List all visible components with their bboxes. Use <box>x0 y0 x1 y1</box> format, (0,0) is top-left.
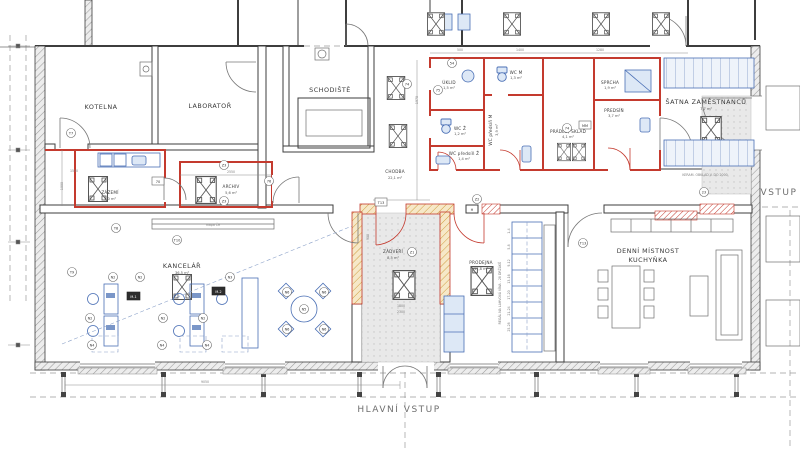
svg-text:Z3: Z3 <box>222 164 227 168</box>
equipment-symbol <box>427 13 444 36</box>
room-area-uklid: 1,5 m² <box>443 86 455 90</box>
dim-1280: 1280 <box>596 48 604 52</box>
svg-text:74: 74 <box>565 127 570 131</box>
room-label-kotelna: KOTELNA <box>84 103 117 111</box>
dim-1970: 1970 <box>415 96 419 104</box>
equipment-symbol <box>503 13 520 36</box>
room-area-zazemi: 5,0 m² <box>104 197 116 201</box>
equipment-symbol <box>393 271 415 300</box>
svg-text:N2: N2 <box>88 317 93 321</box>
datum-markers <box>8 44 30 347</box>
svg-text:21-24: 21-24 <box>507 306 511 315</box>
side-entrance-label: VSTUP <box>761 188 798 198</box>
dim-2300: 2300 <box>397 310 405 314</box>
dim-9050: 9050 <box>201 380 209 384</box>
room-area-archiv: 5,6 m² <box>225 191 237 195</box>
svg-text:T9: T9 <box>69 271 74 275</box>
svg-text:M-2: M-2 <box>215 290 221 294</box>
svg-text:N5: N5 <box>302 308 307 312</box>
svg-text:T7: T7 <box>68 132 73 136</box>
svg-text:N4: N4 <box>205 344 211 348</box>
room-label-satna: ŠATNA ZAMĚSTNANCŮ <box>666 97 747 106</box>
svg-text:74: 74 <box>405 83 410 87</box>
svg-text:REGÁL NA LAHVOVÁ VÍNA - 28 DRŽ: REGÁL NA LAHVOVÁ VÍNA - 28 DRŽÁKŮ <box>497 261 502 324</box>
svg-text:N4: N4 <box>160 344 166 348</box>
svg-text:5-8: 5-8 <box>507 244 511 249</box>
tiling-note: KERAM. OBKLAD V. DO 2000 <box>682 173 727 177</box>
svg-text:25-28: 25-28 <box>507 322 511 331</box>
wardrobes-dashed <box>92 336 248 352</box>
boiler-symbol <box>140 62 152 76</box>
svg-text:23: 23 <box>702 191 706 195</box>
svg-text:Z1: Z1 <box>410 251 415 255</box>
equipment-symbol <box>173 275 192 300</box>
room-label-wc-m: WC M <box>510 70 523 75</box>
zazemi-counter <box>98 153 160 167</box>
svg-text:N6: N6 <box>322 328 327 332</box>
room-area-sprcha: 1,9 m² <box>604 86 616 90</box>
svg-text:T8: T8 <box>113 227 118 231</box>
svg-text:N3: N3 <box>228 276 233 280</box>
room-label-chodba: CHODBA <box>385 169 405 174</box>
room-area-zadveri: 8,5 m² <box>387 256 399 260</box>
dayroom-furniture <box>598 219 742 340</box>
dim-1000: 1000 <box>60 182 64 190</box>
equipment-symbol <box>196 177 216 204</box>
dim-2550: 2550 <box>227 170 235 174</box>
equipment-symbol <box>592 13 609 36</box>
dim-900: 900 <box>366 234 370 240</box>
main-entrance-label: HLAVNÍ VSTUP <box>357 403 440 415</box>
equipment-symbol <box>652 13 669 36</box>
room-area-wc-predsin-z: 1,4 m² <box>458 157 470 161</box>
svg-text:13-16: 13-16 <box>507 274 511 283</box>
svg-text:75: 75 <box>436 89 440 93</box>
wine-shelf-note: REGÁL NA LAHVOVÁ VÍNA - 28 DRŽÁKŮ <box>497 261 502 324</box>
svg-text:WC předsíň M: WC předsíň M <box>488 114 493 145</box>
room-label-denni: DENNÍ MÍSTNOST <box>617 246 680 255</box>
svg-text:T13: T13 <box>579 242 587 246</box>
room-area-chodba: 22,1 m² <box>388 176 403 180</box>
room-area-pradlo: 4,1 m² <box>562 135 574 139</box>
room-label-archiv: ARCHIV <box>223 184 240 189</box>
room-area-kancelar: 36,5 m² <box>175 271 190 275</box>
room-label-laborator: LABORATOŘ <box>188 101 231 110</box>
washer-symbols <box>557 143 585 161</box>
svg-text:N2: N2 <box>138 276 143 280</box>
svg-text:Z3: Z3 <box>222 200 227 204</box>
dim-1800: 1800 <box>397 304 405 308</box>
room-area-satna: 7,7 m² <box>700 107 712 111</box>
lintel-mark: H <box>471 208 474 212</box>
wine-shelf <box>512 222 542 352</box>
svg-text:N2: N2 <box>161 317 166 321</box>
stair <box>298 48 370 148</box>
dim-1400: 1400 <box>516 48 524 52</box>
equipment-symbol <box>701 117 721 144</box>
svg-text:T13: T13 <box>377 201 385 205</box>
svg-text:T10: T10 <box>173 239 181 243</box>
room-label-wc-predsin-z: WC předsíň Ž <box>449 151 480 156</box>
room-label-zadveri: ZÁDVEŘÍ <box>383 249 404 254</box>
svg-text:N4: N4 <box>90 344 96 348</box>
room-area-wc-z: 1,2 m² <box>454 132 466 136</box>
floor-plan-drawing: H <box>0 0 800 450</box>
room-label-sprcha: SPRCHA <box>601 80 619 85</box>
svg-text:1-4: 1-4 <box>507 228 511 233</box>
svg-text:N2: N2 <box>201 317 206 321</box>
office-furniture <box>62 219 352 352</box>
svg-text:MM: MM <box>582 124 588 128</box>
shelf-slot-numbers: 1-4 5-8 9-12 13-16 17-20 21-24 25-28 <box>507 228 511 331</box>
room-label-zazemi: ZÁZEMÍ <box>101 190 119 195</box>
equipment-symbol <box>387 76 405 99</box>
room-area-wc-m: 1,3 m² <box>510 76 522 80</box>
dim-1550: 1550 <box>70 169 78 173</box>
map-note: mapa ČR <box>206 222 221 227</box>
room-label-uklid: ÚKLID <box>442 80 456 85</box>
svg-text:70: 70 <box>156 180 160 184</box>
svg-text:76: 76 <box>267 180 271 184</box>
room-label-predsin: PŘEDSÍŇ <box>604 108 624 113</box>
svg-text:Z2: Z2 <box>475 198 480 202</box>
floor-plan-canvas: H <box>0 0 800 450</box>
room-label-schodiste: SCHODIŠTĚ <box>309 85 351 94</box>
svg-text:N6: N6 <box>322 291 327 295</box>
room-label-prodejna: PRODEJNA <box>469 260 492 265</box>
equipment-symbol <box>389 124 407 147</box>
svg-text:N2: N2 <box>111 276 116 280</box>
upper-rooms <box>0 0 760 53</box>
dim-500: 500 <box>457 48 463 52</box>
room-label-wc-z: WC Ž <box>454 126 466 131</box>
room-area-predsin: 3,7 m² <box>608 114 620 118</box>
svg-text:M-1: M-1 <box>130 295 136 299</box>
svg-text:9-12: 9-12 <box>507 259 511 266</box>
room-area-prodejna: 11,8 m² <box>474 267 489 271</box>
svg-text:N6: N6 <box>285 291 290 295</box>
room-label-kuchynka: KUCHYŇKA <box>628 255 667 264</box>
svg-text:17-20: 17-20 <box>507 290 511 299</box>
svg-text:54: 54 <box>450 62 455 66</box>
room-label-kancelar: KANCELÁŘ <box>163 261 201 270</box>
svg-text:3,9 m²: 3,9 m² <box>495 124 499 136</box>
room-label-wc-predsin-m: WC předsíň M 3,9 m² <box>488 114 499 145</box>
shop-counter <box>444 296 464 352</box>
svg-text:N6: N6 <box>285 328 290 332</box>
